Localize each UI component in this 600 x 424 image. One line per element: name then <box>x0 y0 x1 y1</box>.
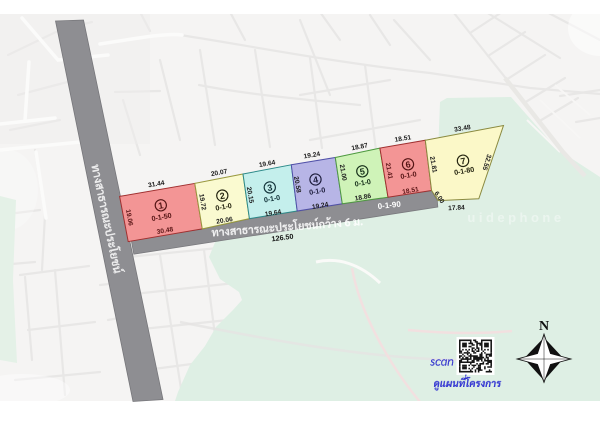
svg-text:uidephone: uidephone <box>467 210 564 225</box>
svg-text:N: N <box>539 319 549 334</box>
svg-text:17.84: 17.84 <box>448 204 465 212</box>
